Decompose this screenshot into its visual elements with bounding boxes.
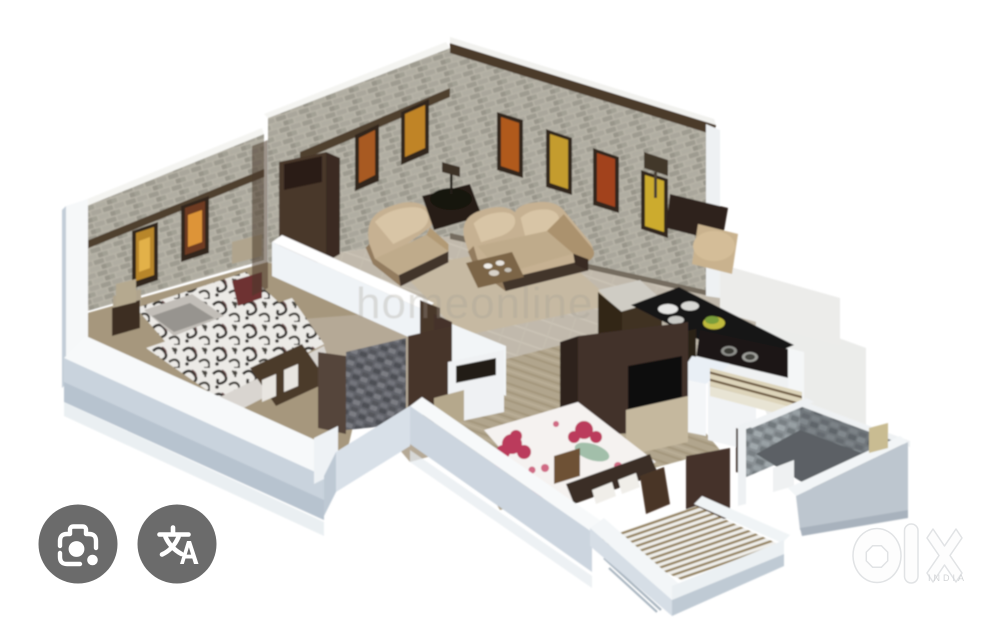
svg-text:homeonline: homeonline [356, 279, 594, 328]
svg-text:INDIA: INDIA [928, 573, 967, 583]
